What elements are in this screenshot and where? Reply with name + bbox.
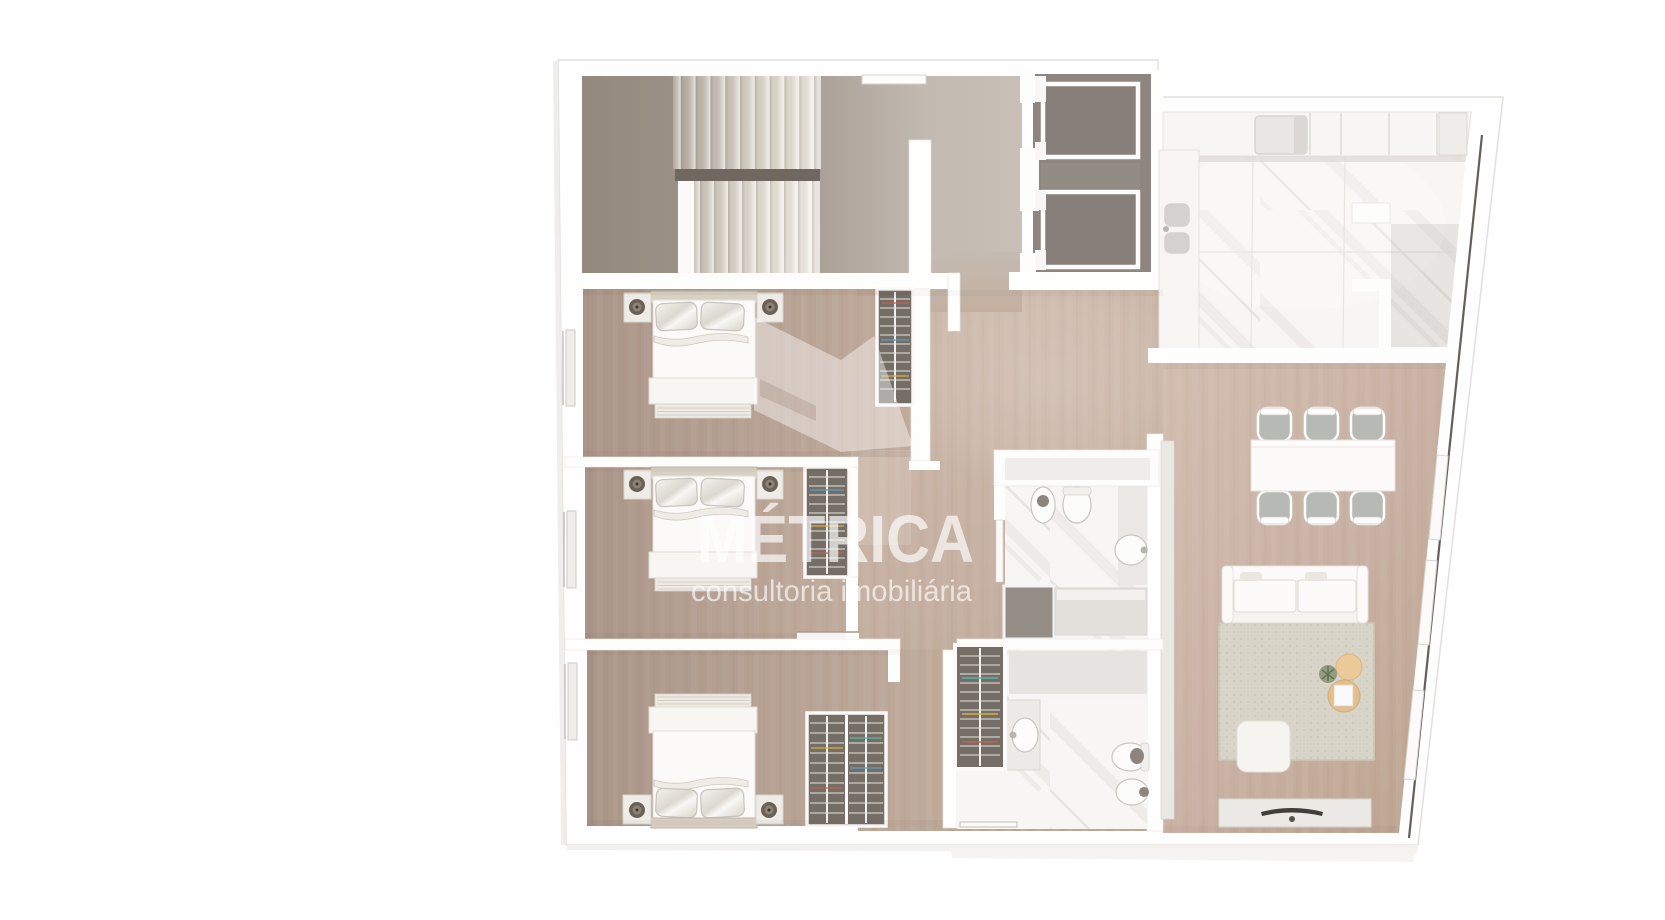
svg-text:consultoria imobiliária: consultoria imobiliária xyxy=(691,575,972,608)
svg-text:MÉTRICA: MÉTRICA xyxy=(697,502,974,577)
